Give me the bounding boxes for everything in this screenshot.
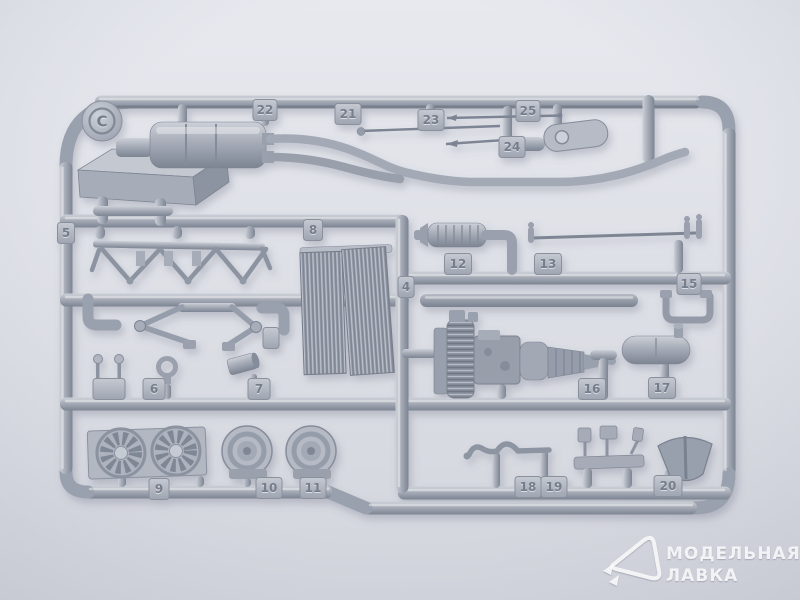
part-number-tag: 1616	[579, 379, 606, 400]
part-number-tag: 44	[398, 277, 414, 298]
part-number-label: 5	[62, 226, 70, 240]
part-number-label: 6	[150, 382, 158, 396]
watermark-line1: МОДЕЛЬНАЯ	[666, 544, 800, 564]
part-number-tag	[93, 379, 125, 400]
part-number-tag: 66	[143, 379, 165, 400]
part-brake-drum-10	[222, 426, 272, 479]
part-fan-plate-9	[87, 426, 207, 479]
part-number-label: 12	[450, 257, 467, 271]
part-number-label: 4	[402, 280, 410, 294]
part-number-label: 16	[584, 382, 601, 396]
part-number-label: 20	[660, 479, 677, 493]
part-number-tag: 2323	[418, 110, 444, 131]
part-number-label: 22	[257, 103, 274, 117]
part-number-tag: 1313	[535, 254, 562, 275]
sprue-letter-medallion: C C	[82, 101, 122, 141]
sprue-letter: C	[96, 113, 107, 131]
part-number-label: 11	[305, 481, 322, 495]
part-number-label: 19	[546, 480, 563, 494]
part-number-label: 9	[155, 482, 163, 496]
part-number-tag: 1818	[515, 477, 541, 498]
part-number-tag: 2020	[654, 476, 682, 497]
fan-wheel	[151, 426, 201, 476]
part-number-label: 25	[520, 104, 537, 118]
part-number-label: 15	[681, 277, 698, 291]
part-number-tag: 2222	[253, 100, 277, 121]
part-number-tag: 1111	[300, 478, 326, 499]
part-number-label: 7	[255, 382, 263, 396]
part-number-tag: 2121	[335, 104, 361, 125]
part-number-tag: 77	[248, 379, 270, 400]
fan-wheel	[96, 428, 146, 478]
part-number-label: 13	[540, 257, 557, 271]
part-number-tag	[263, 328, 279, 349]
part-number-tag: 99	[149, 479, 169, 500]
part-number-label: 23	[423, 113, 440, 127]
part-number-tag: 1919	[541, 477, 567, 498]
part-number-label: 24	[504, 140, 521, 154]
part-number-tag: 88	[304, 220, 323, 241]
part-number-label: 18	[520, 480, 537, 494]
part-number-tag: 1010	[256, 478, 282, 499]
part-number-label: 21	[340, 107, 357, 121]
part-number-tag: 1515	[677, 274, 701, 295]
part-number-label: 8	[309, 223, 317, 237]
part-number-tag: 1212	[445, 254, 472, 275]
part-number-tag: 1717	[649, 378, 676, 399]
part-brake-drum-11	[286, 426, 336, 479]
sprue-photo-canvas: C C 558844667799101011111212131315151616…	[0, 0, 800, 600]
part-number-label: 17	[654, 381, 671, 395]
watermark-line2: ЛАВКА	[666, 566, 738, 586]
part-number-tag: 55	[58, 223, 75, 244]
part-number-tag: 2525	[516, 101, 540, 122]
photo-model-kit-sprue: C C 558844667799101011111212131315151616…	[0, 0, 800, 600]
part-number-label: 10	[261, 481, 278, 495]
part-long-bar-14	[420, 294, 638, 307]
part-number-tag: 2424	[499, 137, 525, 158]
